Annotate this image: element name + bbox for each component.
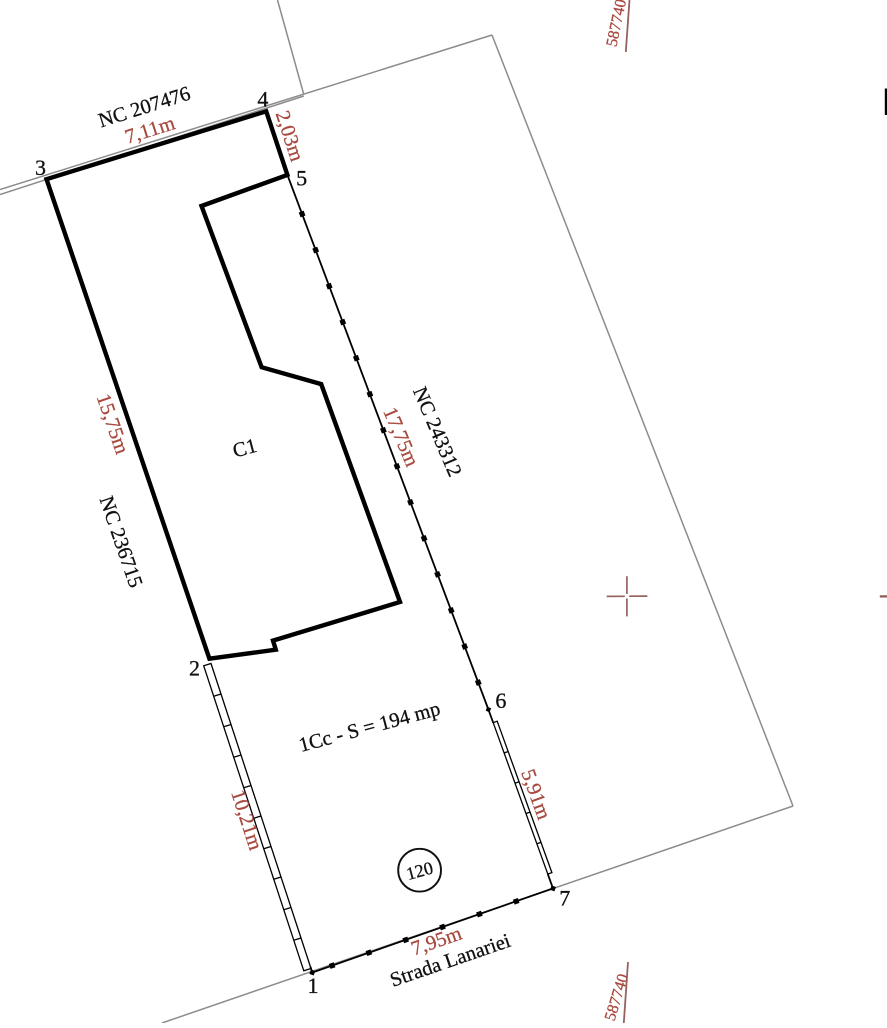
svg-text:6: 6: [495, 688, 506, 713]
svg-text:1: 1: [308, 973, 319, 998]
svg-text:7: 7: [559, 886, 570, 911]
svg-text:3: 3: [35, 155, 46, 180]
svg-text:4: 4: [257, 87, 268, 112]
svg-text:2: 2: [189, 655, 200, 680]
svg-text:5: 5: [296, 165, 307, 190]
